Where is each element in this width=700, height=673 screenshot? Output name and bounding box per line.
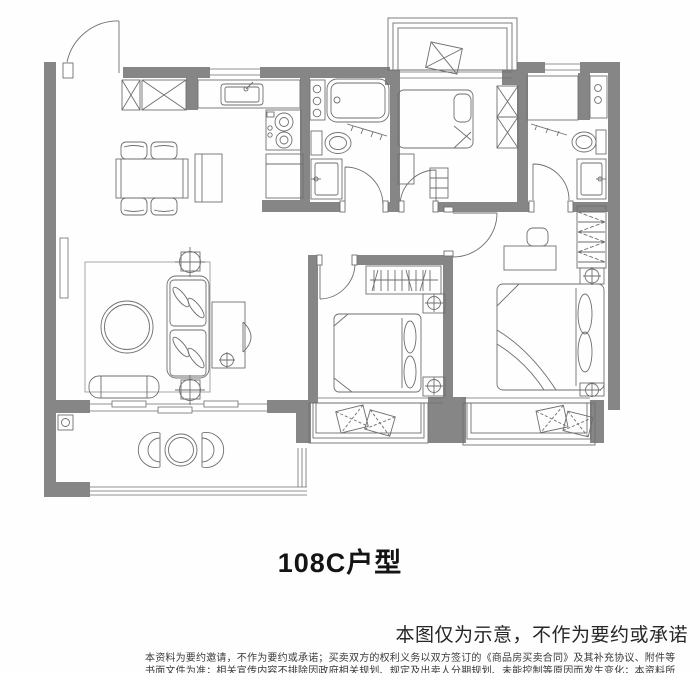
floor-drain xyxy=(58,415,73,430)
door-jambs xyxy=(63,63,573,265)
balcony-chair xyxy=(138,433,160,468)
toilet-2 xyxy=(596,130,606,154)
bay-window-middle xyxy=(309,403,428,443)
balcony xyxy=(58,415,224,468)
floor-plan xyxy=(0,0,700,530)
bedroom-2 xyxy=(398,86,518,198)
coffee-table xyxy=(101,301,153,353)
master-bedroom xyxy=(497,206,606,397)
balcony-table xyxy=(165,434,197,466)
dining-chair xyxy=(151,198,177,215)
page-title: 108C户型 xyxy=(0,541,680,580)
disclaimer-line-2: 书面文件为准；相关宣传内容不排除因政府相关规划、规定及出卖人分期规划、未能控制等… xyxy=(145,665,695,673)
bedroom-3 xyxy=(334,266,445,396)
floor-plan-drawing xyxy=(0,0,700,530)
rug xyxy=(85,262,210,392)
shelf xyxy=(430,168,448,198)
walls xyxy=(44,62,620,497)
console-table xyxy=(212,302,245,368)
dining-chair xyxy=(121,198,147,215)
notice-text: 本图仅为示意，不作为要约或承诺 xyxy=(8,620,688,647)
fridge xyxy=(266,154,303,198)
dining-chair xyxy=(151,142,177,159)
bay-window-master xyxy=(463,403,595,445)
kitchen xyxy=(198,80,303,198)
dining-chair xyxy=(121,142,147,159)
toilet-1 xyxy=(311,131,322,155)
disclaimer-text: 本资料为要约邀请，不作为要约或承诺；买卖双方的权利义务以双方签订的《商品房买卖合… xyxy=(145,652,695,673)
bed-master xyxy=(497,284,604,390)
disclaimer-line-1: 本资料为要约邀请，不作为要约或承诺；买卖双方的权利义务以双方签订的《商品房买卖合… xyxy=(145,652,695,665)
bathroom-2 xyxy=(527,76,607,199)
bay-window-top xyxy=(388,18,517,74)
living-dining xyxy=(85,142,251,405)
entry-cabinets xyxy=(122,80,186,110)
sideboard xyxy=(195,154,222,202)
balcony-chair xyxy=(202,433,224,468)
page: 108C户型 本图仅为示意，不作为要约或承诺 本资料为要约邀请，不作为要约或承诺… xyxy=(0,0,700,673)
bed-3 xyxy=(334,314,421,392)
tv xyxy=(243,322,251,352)
shower xyxy=(527,76,578,120)
bathroom-1 xyxy=(310,79,389,199)
bathtub xyxy=(327,79,389,122)
dining-table xyxy=(116,159,188,198)
desk-master xyxy=(504,246,556,270)
bed-2 xyxy=(398,90,473,148)
desk-chair xyxy=(527,228,548,246)
bench xyxy=(89,376,159,398)
